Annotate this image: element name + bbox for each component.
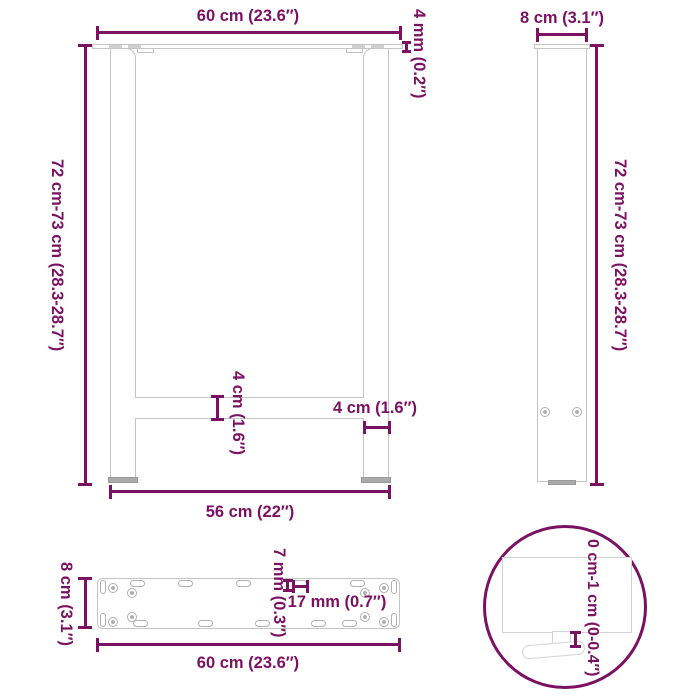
detail-leg-end <box>502 557 632 633</box>
plate-hole <box>133 620 148 627</box>
plate-hole <box>198 620 213 627</box>
plate-hole <box>100 580 106 594</box>
weld-tab <box>346 48 363 53</box>
dim-tick <box>590 44 604 47</box>
label-crossbar-thickness: 4 cm (1.6″) <box>227 370 249 456</box>
weld-tab <box>137 48 154 53</box>
plate-hole <box>130 580 145 587</box>
plate-hole <box>311 620 326 627</box>
dim-tick <box>585 28 588 42</box>
dim-line-front-top <box>97 31 401 34</box>
dim-tick <box>78 44 92 47</box>
dim-line-front-height <box>84 44 87 486</box>
dim-tick <box>398 638 401 652</box>
dim-tick <box>78 626 92 629</box>
label-plate-depth: 8 cm (3.1″) <box>55 558 77 650</box>
front-left-foot <box>108 477 138 483</box>
label-plate-length: 60 cm (23.6″) <box>148 652 348 674</box>
plate-hole <box>391 580 397 594</box>
dim-line-front-bottom <box>110 490 390 493</box>
dim-tick <box>363 421 366 434</box>
label-front-top-width: 60 cm (23.6″) <box>148 5 348 27</box>
dim-stem <box>574 633 577 646</box>
dim-line-side-width <box>537 33 587 36</box>
plate-hole-dot <box>111 620 115 624</box>
screw-hole-dot <box>543 410 547 414</box>
label-side-width: 8 cm (3.1″) <box>487 7 637 29</box>
plate-hole <box>350 580 365 587</box>
screw-hole-dot <box>575 410 579 414</box>
label-leg-width: 4 cm (1.6″) <box>330 398 420 418</box>
dim-tick <box>96 638 99 652</box>
plate-hole <box>100 613 106 627</box>
dim-tick <box>78 577 92 580</box>
dim-stem <box>365 426 389 429</box>
plate-hole-dot <box>130 591 134 595</box>
dim-line-plate-length <box>97 643 400 646</box>
label-slot-length: 17 mm (0.7″) <box>287 592 387 612</box>
product-dimension-diagram: 60 cm (23.6″) 4 mm (0.2″) 72 cm-73 cm (2… <box>0 0 700 700</box>
label-plate-thickness: 4 mm (0.2″) <box>408 4 430 104</box>
plate-hole <box>178 580 193 587</box>
dim-tick <box>590 483 604 486</box>
front-left-leg <box>110 48 136 478</box>
label-front-height: 72 cm-73 cm (28.3-28.7″) <box>46 150 68 360</box>
label-foot-adjust-range: 0 cm-1 cm (0-0.4″) <box>581 538 603 678</box>
front-right-foot <box>361 477 391 483</box>
plate-hole-dot <box>382 586 386 590</box>
dim-tick <box>388 421 391 434</box>
plate-hole <box>236 580 251 587</box>
dim-tick <box>109 485 112 499</box>
dim-stem <box>84 578 87 628</box>
dim-stem <box>216 396 219 420</box>
dim-tick <box>536 28 539 42</box>
plate-hole <box>391 613 397 627</box>
plate-hole-dot <box>111 586 115 590</box>
dim-line-side-height <box>595 45 598 485</box>
dim-tick <box>96 26 99 40</box>
side-foot <box>548 480 576 485</box>
label-side-height: 72 cm-73 cm (28.3-28.7″) <box>609 150 631 360</box>
dim-tick <box>78 483 92 486</box>
plate-hole-dot <box>382 620 386 624</box>
plate-hole-dot <box>130 615 134 619</box>
plate-hole-dot <box>363 615 367 619</box>
label-front-bottom-span: 56 cm (22″) <box>150 501 350 523</box>
plate-hole <box>342 620 357 627</box>
dim-tick <box>388 485 391 499</box>
dim-tick <box>399 26 402 40</box>
